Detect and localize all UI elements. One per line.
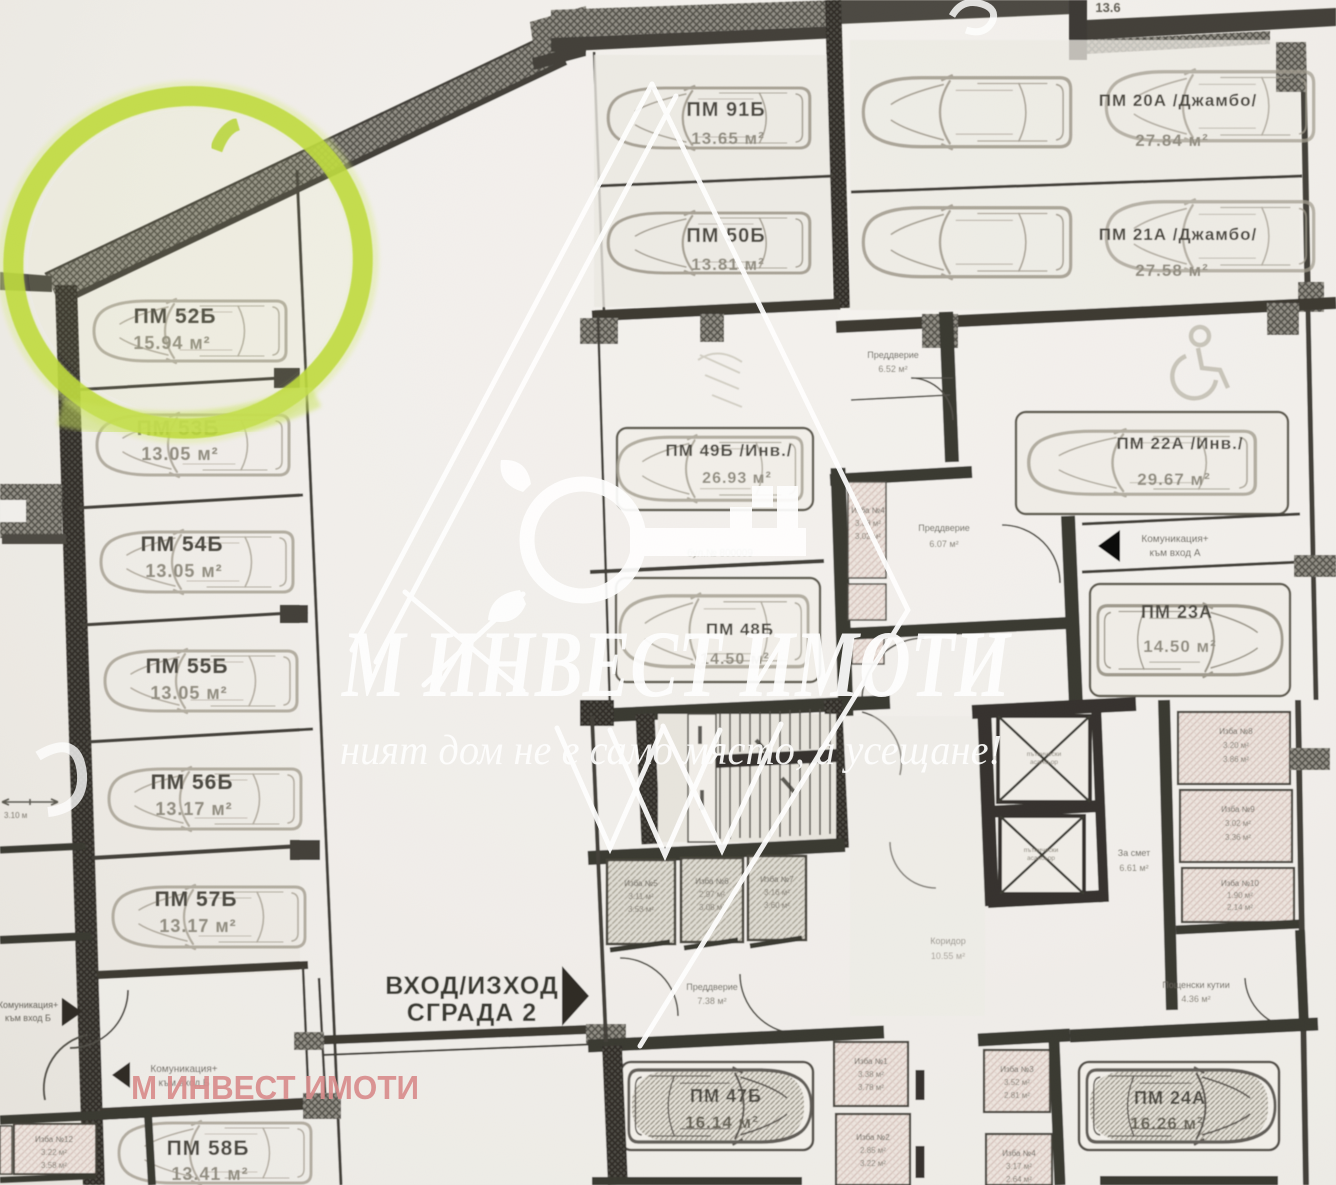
svg-text:М ИНВЕСТ ИМОТИ: М ИНВЕСТ ИМОТИ (131, 1069, 419, 1106)
